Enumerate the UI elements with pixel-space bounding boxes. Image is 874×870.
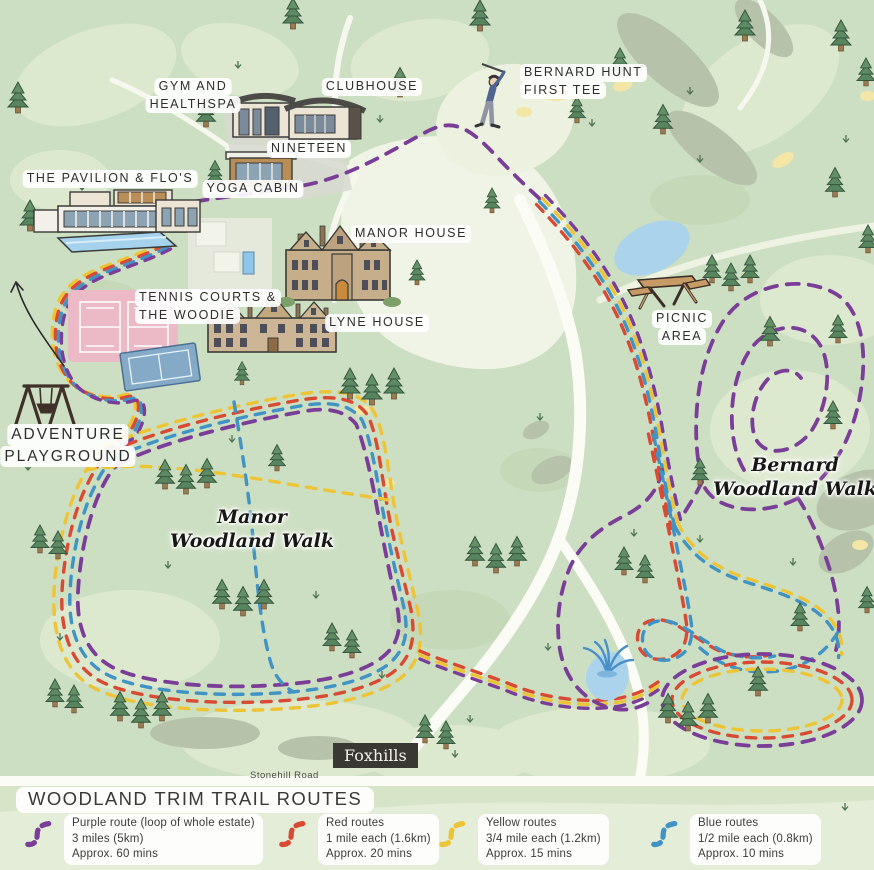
- purple-route-icon: [24, 817, 58, 851]
- legend-item-purple: Purple route (loop of whole estate) 3 mi…: [24, 814, 263, 865]
- legend-title: WOODLAND TRIM TRAIL ROUTES: [16, 787, 374, 813]
- red-route-icon: [278, 817, 312, 851]
- estate-map: [0, 0, 874, 870]
- legend-item-red: Red routes 1 mile each (1.6km) Approx. 2…: [278, 814, 439, 865]
- legend-item-yellow: Yellow routes 3/4 mile each (1.2km) Appr…: [438, 814, 609, 865]
- yoga-cabin-building: [226, 152, 296, 186]
- lyne-house-building: [208, 296, 336, 352]
- blue-route-icon: [650, 817, 684, 851]
- yellow-route-icon: [438, 817, 472, 851]
- estate-map-page: GYM ANDHEALTHSPA CLUBHOUSE NINETEEN YOGA…: [0, 0, 874, 870]
- clubhouse-building: [227, 96, 365, 139]
- legend-item-blue: Blue routes 1/2 mile each (0.8km) Approx…: [650, 814, 821, 865]
